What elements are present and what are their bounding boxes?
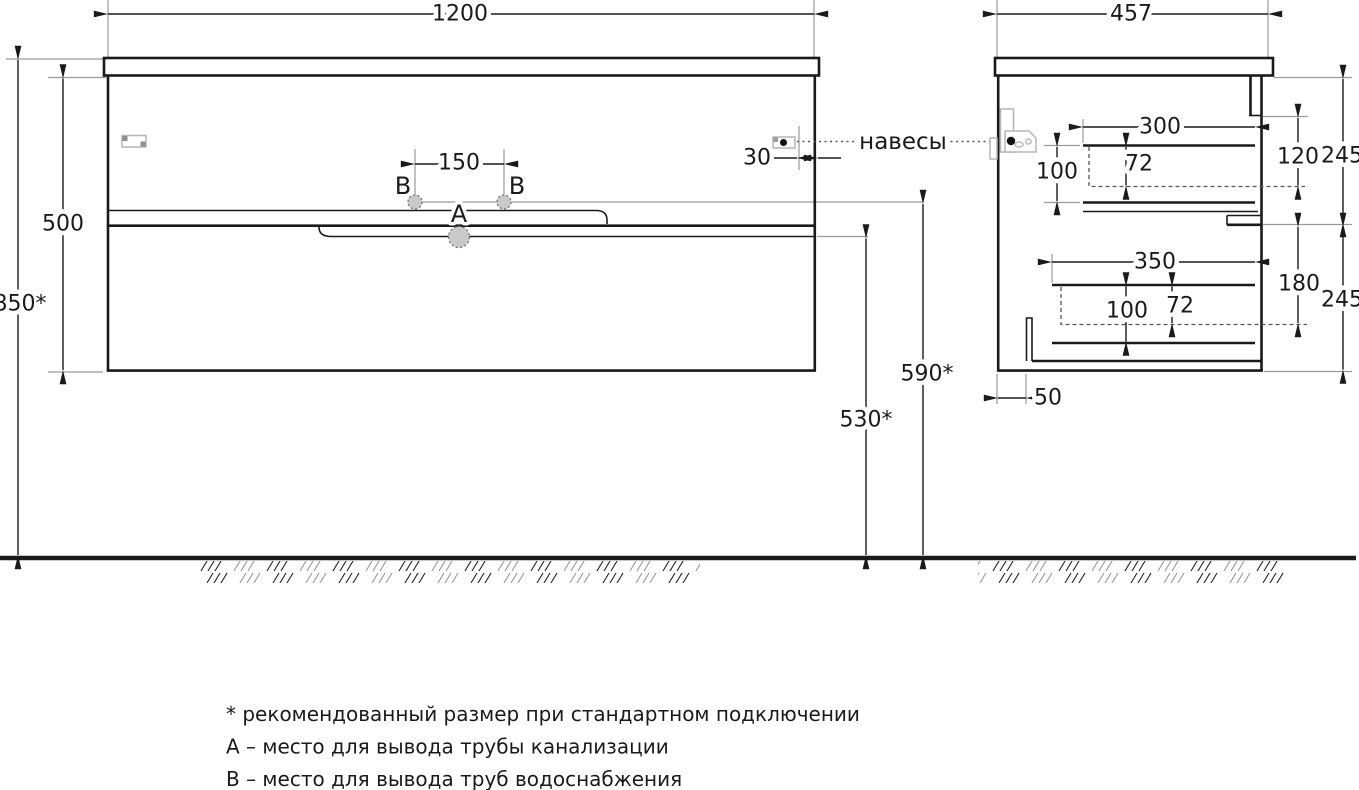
siphon-cutout — [1027, 318, 1033, 361]
dim-bottom-zone-180: 180 — [1278, 227, 1320, 323]
dim-bottom-section-245: 245 — [1321, 227, 1359, 370]
dim-text-top-zone: 120 — [1277, 145, 1319, 170]
dim-top-zone-120: 120 — [1277, 118, 1319, 186]
dim-top-drawer-front-100: 100 — [1036, 147, 1078, 201]
dim-bottom-drawer-depth-72: 72 — [1166, 287, 1194, 324]
dim-top-drawer-width-300: 300 — [1083, 115, 1255, 140]
dim-text-bottom-drawer-depth: 72 — [1166, 294, 1194, 319]
dim-depth-457: 457 — [997, 2, 1268, 27]
dim-text-top-drawer-width: 300 — [1139, 115, 1181, 140]
technical-drawing-page: 1200 850* 500 150 B B A 30 590* 530* — [0, 0, 1359, 790]
dim-hole-spacing-150: 150 — [415, 151, 504, 176]
floor — [0, 558, 1356, 583]
countertop-front — [104, 58, 819, 76]
dim-text-bottom-section: 245 — [1321, 288, 1359, 313]
dim-text-width: 1200 — [432, 2, 488, 27]
countertop-side — [995, 58, 1273, 76]
note-hole-b: B – место для вывода труб водоснабжения — [226, 767, 682, 790]
hangers-label: навесы — [859, 129, 947, 155]
dim-text-top-drawer-front: 100 — [1036, 160, 1078, 185]
hole-b-right-label: B — [509, 172, 525, 200]
dim-text-hole-spacing: 150 — [438, 151, 480, 176]
dim-drain-height-530: 530* — [840, 239, 893, 556]
dim-text-bottom-drawer-width: 350 — [1134, 250, 1176, 275]
dim-hanger-offset-30: 30 — [743, 146, 841, 171]
note-hole-a: A – место для вывода трубы канализации — [226, 735, 669, 759]
dim-text-bottom-zone: 180 — [1278, 272, 1320, 297]
drawer-front-top-line — [108, 211, 607, 225]
dim-bottom-drawer-width-350: 350 — [1052, 250, 1255, 275]
dim-text-siphon-gap: 50 — [1034, 386, 1062, 411]
dim-total-height-850: 850* — [0, 60, 47, 555]
dim-text-top-drawer-depth: 72 — [1125, 152, 1153, 177]
dim-text-bottom-drawer-front: 100 — [1106, 299, 1148, 324]
vanity-dimension-drawing: 1200 850* 500 150 B B A 30 590* 530* — [0, 0, 1359, 790]
hanger-bracket-left-icon — [122, 136, 146, 148]
drawer-front-bottom-line — [319, 227, 814, 237]
floor-hatching-left — [200, 561, 700, 583]
dim-top-section-245: 245 — [1321, 79, 1359, 223]
dim-text-total-height: 850* — [0, 292, 47, 317]
dim-text-supply-height: 590* — [901, 362, 954, 387]
hole-b-left-label: B — [395, 172, 411, 200]
dim-text-hanger-offset: 30 — [743, 146, 771, 171]
dim-text-depth: 457 — [1110, 2, 1152, 27]
dim-text-top-section: 245 — [1321, 144, 1359, 169]
dim-text-drain-height: 530* — [840, 408, 893, 433]
dim-supply-height-590: 590* — [901, 204, 954, 555]
front-view: 1200 850* 500 150 B B A 30 590* 530* — [0, 0, 954, 555]
top-drawer-inner-dashed — [1089, 147, 1305, 187]
dim-siphon-gap-50: 50 — [998, 386, 1062, 411]
floor-hatching-right — [978, 561, 1288, 583]
dim-bottom-drawer-front-100: 100 — [1106, 287, 1148, 342]
dim-text-cabinet-height: 500 — [42, 212, 84, 237]
notes: * рекомендованный размер при стандартном… — [226, 702, 860, 790]
dim-cabinet-height-500: 500 — [42, 79, 84, 371]
hanger-bracket-right-icon — [773, 137, 795, 148]
note-recommended-size: * рекомендованный размер при стандартном… — [226, 702, 860, 726]
dim-top-drawer-depth-72: 72 — [1125, 147, 1153, 186]
hangers-callout: навесы — [797, 129, 1007, 155]
drain-hole — [449, 227, 470, 248]
dim-width-1200: 1200 — [108, 2, 814, 27]
side-view: 457 300 100 72 120 245 350 100 — [990, 0, 1359, 411]
hole-a-label: A — [451, 200, 468, 228]
